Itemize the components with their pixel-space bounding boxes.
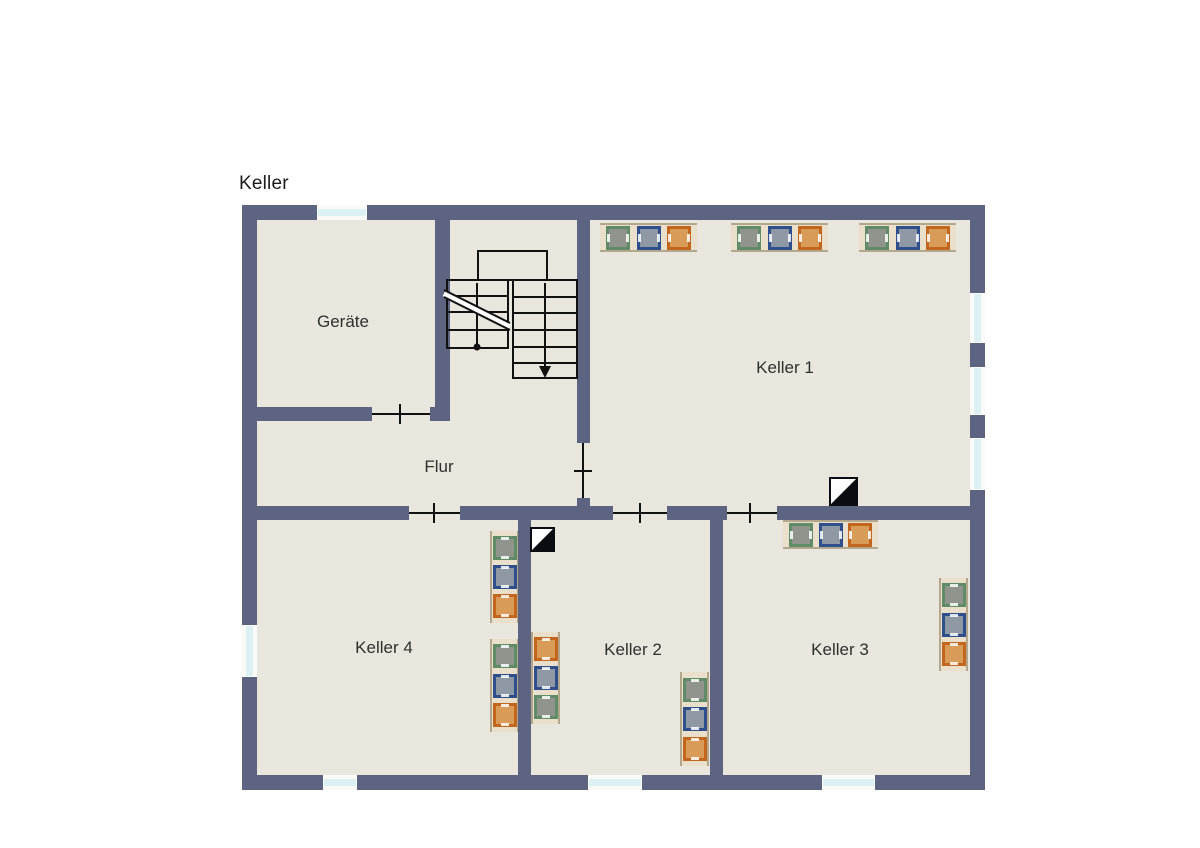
room-label-keller-3: Keller 3 — [811, 640, 869, 660]
machine-notch — [691, 708, 699, 711]
machine-notch — [818, 234, 821, 242]
washing-machine-green — [942, 583, 966, 607]
room-label-flur: Flur — [424, 457, 453, 477]
machine-notch — [691, 698, 699, 701]
window — [323, 775, 357, 790]
washing-machine-blue — [819, 523, 843, 547]
washing-machine-orange — [493, 703, 517, 727]
window-pane — [318, 209, 366, 216]
machine-notch — [542, 696, 550, 699]
washing-machine-blue — [493, 565, 517, 589]
machine-notch — [866, 234, 869, 242]
machine-notch — [691, 727, 699, 730]
machine-notch — [885, 234, 888, 242]
washing-machine-orange — [667, 226, 691, 250]
machine-notch — [950, 584, 958, 587]
machine-notch — [501, 704, 509, 707]
washing-machine-orange — [798, 226, 822, 250]
window-pane — [246, 626, 253, 676]
wall — [777, 506, 970, 520]
washing-machine-blue — [896, 226, 920, 250]
machine-notch — [657, 234, 660, 242]
wall — [257, 407, 372, 421]
washing-machine-green — [737, 226, 761, 250]
machine-notch — [501, 556, 509, 559]
chimney-triangle — [831, 479, 856, 504]
machine-notch — [687, 234, 690, 242]
machine-notch — [501, 566, 509, 569]
window — [317, 205, 367, 220]
machine-notch — [757, 234, 760, 242]
wall — [435, 220, 450, 421]
machine-notch — [501, 614, 509, 617]
machine-notch — [626, 234, 629, 242]
floor-plan-canvas: GeräteFlurKeller 1Keller 2Keller 3Keller… — [0, 0, 1200, 848]
machine-notch — [916, 234, 919, 242]
washing-machine-blue — [637, 226, 661, 250]
room-label-keller-4: Keller 4 — [355, 638, 413, 658]
washing-machine-green — [606, 226, 630, 250]
wall — [667, 506, 727, 520]
window-pane — [324, 779, 356, 786]
chimney-symbol — [829, 477, 858, 506]
machine-notch — [542, 657, 550, 660]
window-pane — [589, 779, 641, 786]
machine-notch — [820, 531, 823, 539]
washing-machine-green — [493, 644, 517, 668]
wall — [710, 520, 723, 775]
washing-machine-green — [493, 536, 517, 560]
wall — [460, 506, 613, 520]
machine-notch — [542, 638, 550, 641]
machine-notch — [691, 679, 699, 682]
window — [970, 438, 985, 490]
washing-machine-orange — [683, 737, 707, 761]
machine-notch — [738, 234, 741, 242]
washing-machine-orange — [493, 594, 517, 618]
machine-notch — [691, 757, 699, 760]
machine-notch — [501, 585, 509, 588]
window-pane — [974, 439, 981, 489]
washing-machine-blue — [493, 674, 517, 698]
machine-notch — [501, 595, 509, 598]
washing-machine-orange — [848, 523, 872, 547]
washing-machine-orange — [534, 637, 558, 661]
wall — [257, 506, 409, 520]
machine-notch — [769, 234, 772, 242]
chimney-symbol — [530, 527, 555, 552]
washing-machine-green — [683, 678, 707, 702]
machine-notch — [950, 603, 958, 606]
window — [970, 293, 985, 343]
machine-notch — [950, 633, 958, 636]
machine-notch — [501, 723, 509, 726]
room-label-geraete: Geräte — [317, 312, 369, 332]
window-pane — [974, 368, 981, 414]
machine-notch — [542, 686, 550, 689]
wall — [577, 220, 590, 443]
machine-notch — [839, 531, 842, 539]
window-pane — [823, 779, 874, 786]
window — [588, 775, 642, 790]
washing-machine-blue — [942, 613, 966, 637]
machine-notch — [950, 614, 958, 617]
machine-notch — [542, 667, 550, 670]
room-label-keller-1: Keller 1 — [756, 358, 814, 378]
washing-machine-orange — [942, 642, 966, 666]
machine-notch — [668, 234, 671, 242]
washing-machine-blue — [683, 707, 707, 731]
machine-notch — [897, 234, 900, 242]
machine-notch — [950, 662, 958, 665]
machine-notch — [788, 234, 791, 242]
machine-notch — [638, 234, 641, 242]
washing-machine-blue — [534, 666, 558, 690]
machine-notch — [501, 694, 509, 697]
wall — [518, 520, 531, 775]
machine-notch — [950, 643, 958, 646]
washing-machine-blue — [768, 226, 792, 250]
chimney-triangle — [532, 529, 553, 550]
window — [822, 775, 875, 790]
machine-notch — [790, 531, 793, 539]
washing-machine-orange — [926, 226, 950, 250]
machine-notch — [868, 531, 871, 539]
washing-machine-green — [789, 523, 813, 547]
machine-notch — [946, 234, 949, 242]
machine-notch — [607, 234, 610, 242]
machine-notch — [927, 234, 930, 242]
machine-notch — [849, 531, 852, 539]
machine-notch — [501, 537, 509, 540]
washing-machine-green — [534, 695, 558, 719]
machine-notch — [501, 675, 509, 678]
wall — [430, 407, 450, 421]
window-pane — [974, 294, 981, 342]
window — [242, 625, 257, 677]
room-label-keller-2: Keller 2 — [604, 640, 662, 660]
machine-notch — [809, 531, 812, 539]
machine-notch — [501, 645, 509, 648]
floor-area — [242, 205, 985, 790]
machine-notch — [501, 664, 509, 667]
washing-machine-green — [865, 226, 889, 250]
window — [970, 367, 985, 415]
wall — [242, 205, 257, 790]
machine-notch — [799, 234, 802, 242]
machine-notch — [691, 738, 699, 741]
machine-notch — [542, 715, 550, 718]
